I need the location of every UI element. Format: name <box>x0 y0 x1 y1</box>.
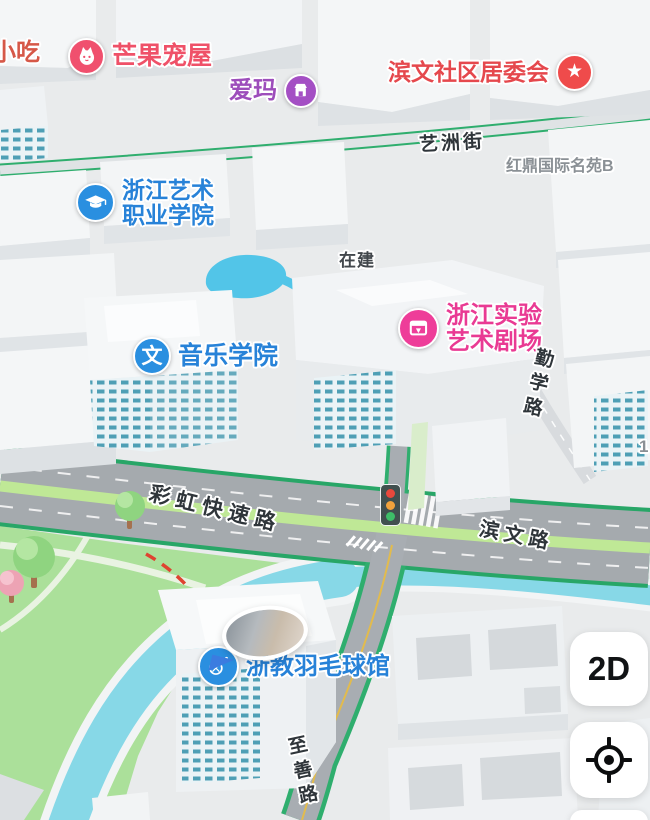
poi-label: 滨文社区居委会 <box>388 60 549 85</box>
poi-label: 浙江艺术 职业学院 <box>122 178 214 228</box>
poi-snack[interactable]: 小吃 <box>0 40 40 66</box>
wen-icon: 文 <box>133 337 171 375</box>
map-canvas[interactable]: 小吃 芒果宠屋 爱玛 滨文社区居委会 ★ <box>0 0 650 820</box>
photo-thumbnail <box>219 601 311 665</box>
area-label-under-construction: 在建 <box>339 246 375 271</box>
traffic-light-icon <box>380 484 401 526</box>
star-icon: ★ <box>556 54 593 91</box>
poi-label: 爱玛 <box>229 78 277 104</box>
road-label-yizhou-street: 艺洲街 <box>418 126 485 156</box>
photo-marker[interactable] <box>214 606 324 676</box>
poi-binwen-community-committee[interactable]: 滨文社区居委会 ★ <box>388 54 593 91</box>
poi-label: 音乐学院 <box>178 343 278 370</box>
traffic-light-red <box>386 489 395 498</box>
poi-mango-pet-house[interactable]: 芒果宠屋 <box>68 38 212 75</box>
graduation-cap-icon <box>76 183 115 222</box>
area-label-hongding: 红鼎国际名苑B <box>506 152 614 176</box>
poi-zhejiang-experimental-art-theater[interactable]: 浙江实验 艺术剧场 <box>398 303 542 355</box>
traffic-light-green <box>386 512 395 521</box>
map-base-art <box>0 0 650 820</box>
gps-crosshair-icon <box>586 737 632 783</box>
traffic-light-amber <box>386 501 395 510</box>
locate-button[interactable] <box>570 722 648 798</box>
poi-label: 芒果宠屋 <box>112 43 212 70</box>
cat-icon <box>68 38 105 75</box>
poi-label: 小吃 <box>0 40 40 66</box>
partial-button[interactable] <box>570 810 648 820</box>
poi-music-school[interactable]: 文 音乐学院 <box>133 337 278 375</box>
shop-icon <box>284 74 318 108</box>
poi-aima[interactable]: 爱玛 <box>229 74 318 108</box>
view-mode-2d-button[interactable]: 2D <box>570 632 648 706</box>
poi-zhejiang-art-vocational-college[interactable]: 浙江艺术 职业学院 <box>76 178 214 228</box>
poi-label: 浙江实验 艺术剧场 <box>446 303 542 355</box>
area-label-number: 1 <box>639 437 648 457</box>
theater-icon <box>398 308 439 349</box>
